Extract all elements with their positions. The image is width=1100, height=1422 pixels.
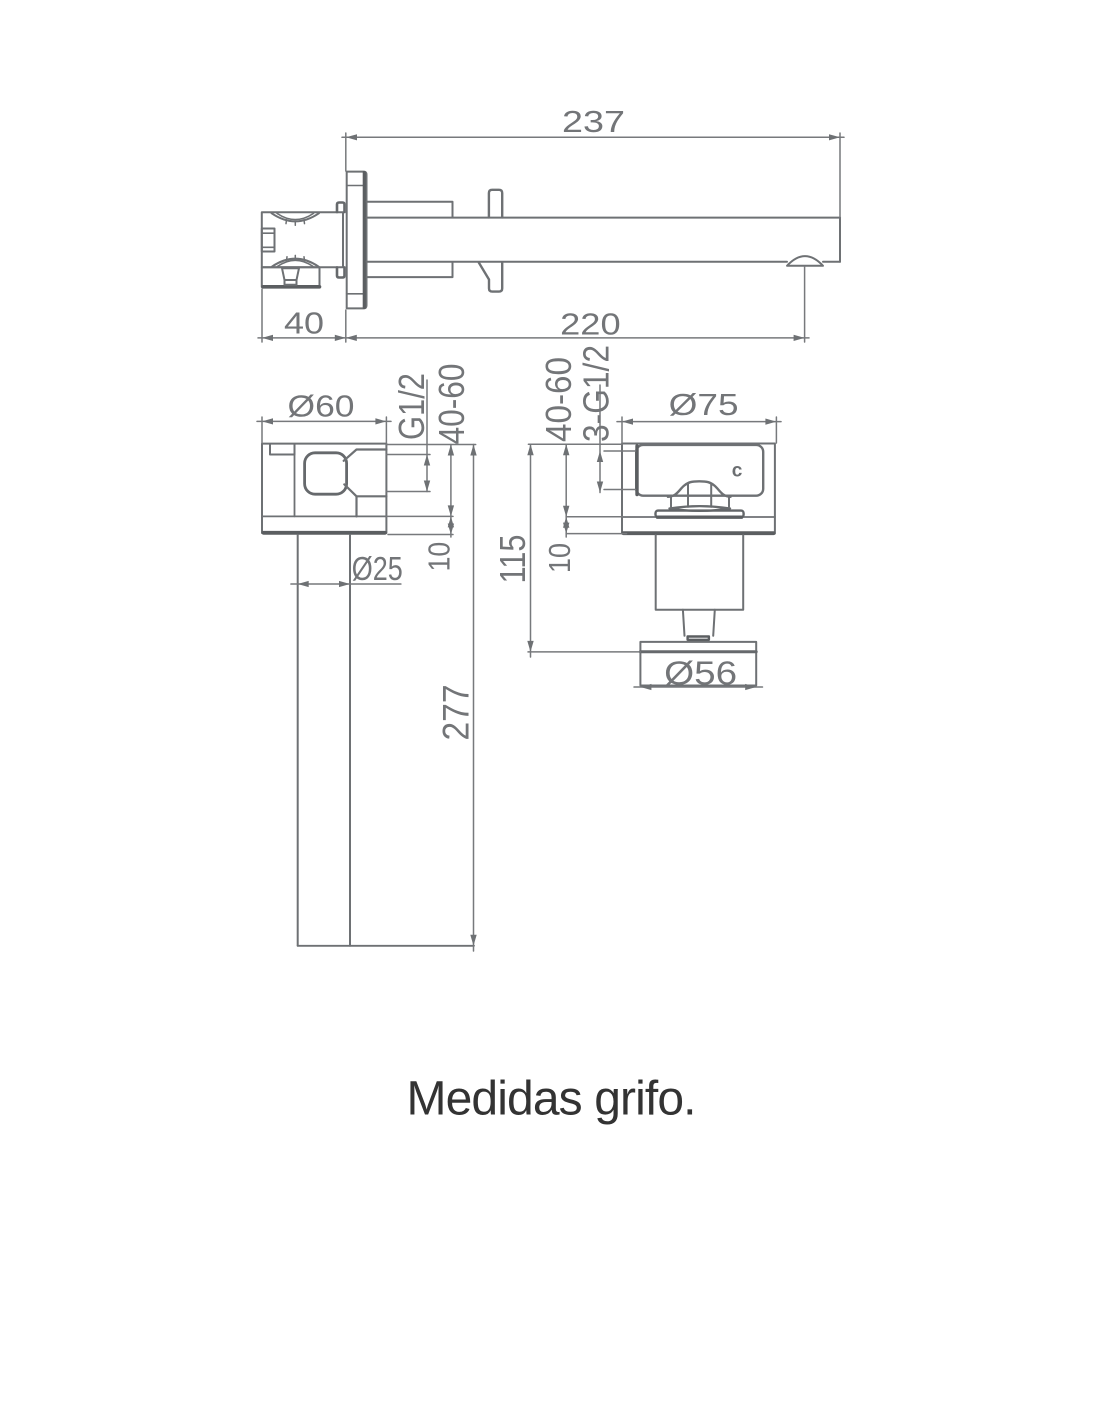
svg-text:Ø75: Ø75	[669, 387, 739, 422]
svg-text:115: 115	[492, 535, 533, 584]
svg-text:10: 10	[422, 542, 457, 572]
svg-text:G1/2: G1/2	[391, 373, 432, 440]
svg-text:10: 10	[542, 543, 577, 573]
svg-text:Ø60: Ø60	[288, 389, 355, 424]
svg-text:3-G1/2: 3-G1/2	[576, 345, 617, 442]
svg-text:220: 220	[560, 306, 621, 341]
svg-text:Ø25: Ø25	[352, 550, 403, 587]
svg-text:40-60: 40-60	[538, 357, 579, 442]
svg-text:40: 40	[284, 306, 324, 341]
svg-text:277: 277	[436, 685, 477, 741]
svg-text:237: 237	[562, 104, 625, 139]
svg-text:c: c	[732, 461, 743, 482]
svg-text:Ø56: Ø56	[664, 655, 737, 692]
svg-text:40-60: 40-60	[431, 364, 472, 445]
svg-text:Medidas grifo.: Medidas grifo.	[407, 1073, 697, 1126]
